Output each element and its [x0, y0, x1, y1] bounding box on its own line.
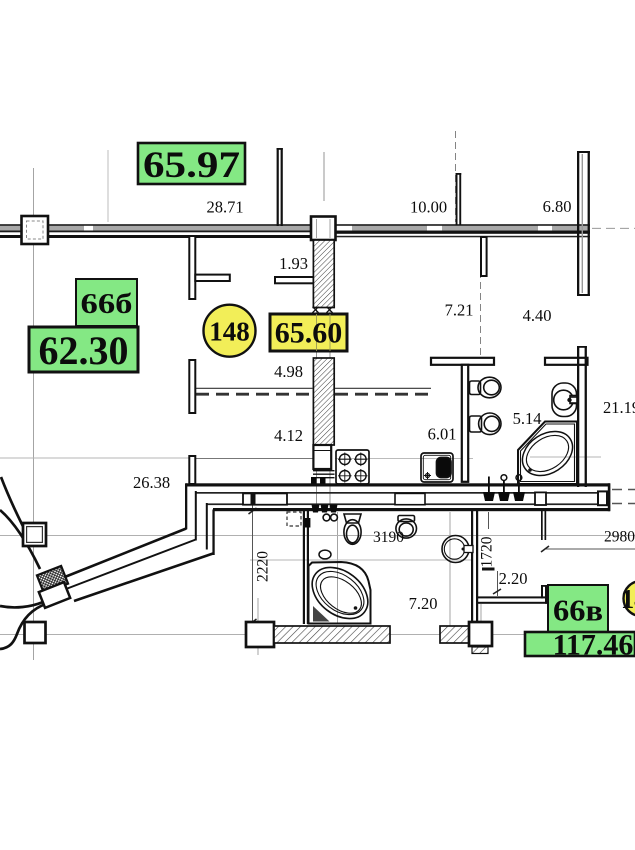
svg-text:65.60: 65.60	[275, 317, 343, 350]
svg-text:1.93: 1.93	[279, 254, 308, 273]
svg-text:4.98: 4.98	[274, 362, 303, 381]
svg-text:2.20: 2.20	[499, 569, 528, 588]
svg-text:149: 149	[621, 584, 635, 614]
svg-text:148: 148	[209, 317, 250, 347]
svg-text:7.20: 7.20	[409, 594, 438, 613]
svg-text:26.38: 26.38	[133, 473, 170, 492]
svg-text:21.19: 21.19	[603, 398, 635, 417]
svg-text:5.14: 5.14	[513, 409, 542, 428]
svg-text:1720: 1720	[479, 536, 496, 567]
svg-text:62.30: 62.30	[39, 328, 129, 373]
svg-text:7.21: 7.21	[445, 301, 474, 320]
svg-text:2220: 2220	[255, 551, 272, 582]
svg-text:6.80: 6.80	[543, 197, 572, 216]
svg-text:6.01: 6.01	[428, 425, 457, 444]
svg-text:4.12: 4.12	[274, 426, 303, 445]
svg-text:28.71: 28.71	[206, 198, 243, 217]
svg-text:3190: 3190	[373, 529, 404, 546]
svg-text:117.46: 117.46	[553, 629, 634, 662]
svg-text:66б: 66б	[81, 288, 133, 320]
svg-text:4.40: 4.40	[523, 306, 552, 325]
svg-text:65.97: 65.97	[143, 145, 240, 186]
svg-text:2980: 2980	[604, 529, 635, 546]
svg-text:10.00: 10.00	[410, 198, 447, 217]
svg-text:66в: 66в	[553, 593, 603, 628]
